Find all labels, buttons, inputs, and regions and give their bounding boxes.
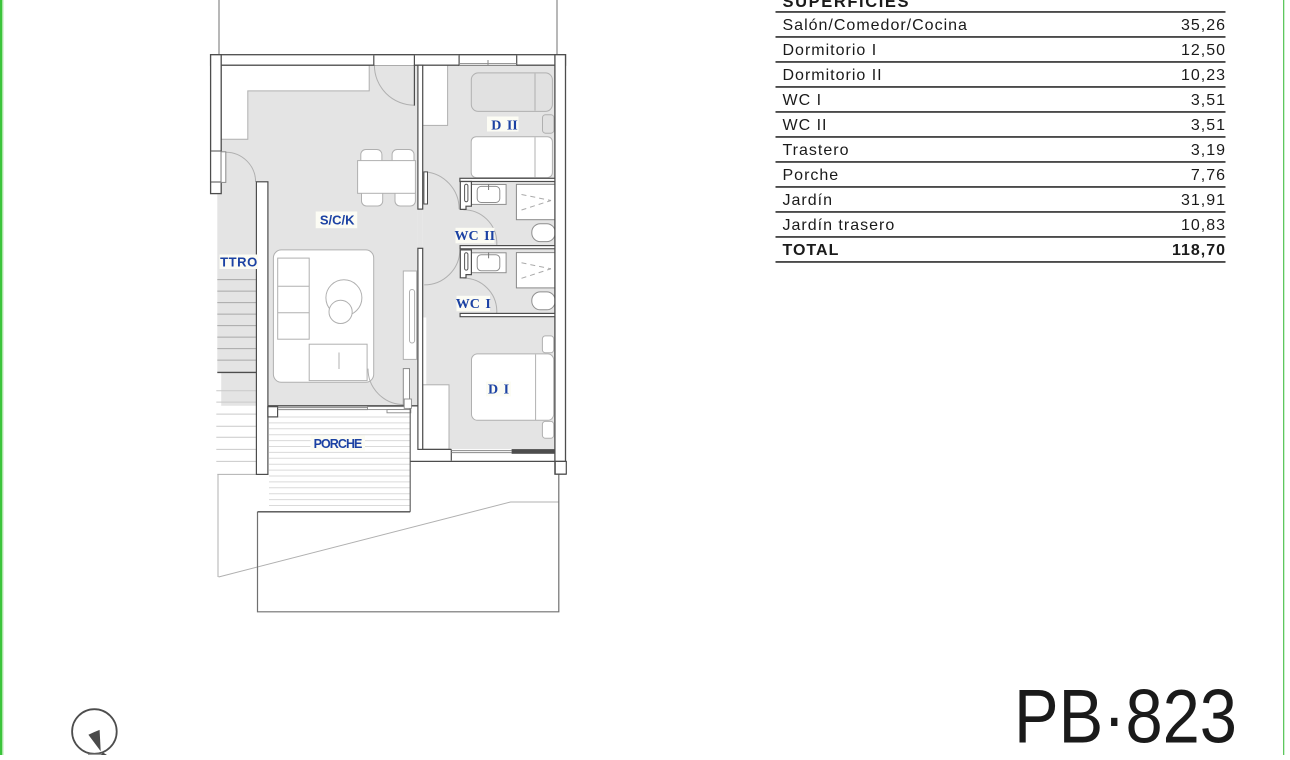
svg-text:D II: D II <box>491 119 518 134</box>
svg-text:3,51: 3,51 <box>1191 117 1226 134</box>
svg-text:SUPERFICIES: SUPERFICIES <box>783 0 911 11</box>
svg-text:Dormitorio I: Dormitorio I <box>783 42 878 59</box>
svg-text:Jardín: Jardín <box>783 192 833 209</box>
svg-text:Jardín trasero: Jardín trasero <box>783 217 896 234</box>
svg-text:3,19: 3,19 <box>1191 142 1226 159</box>
svg-text:TOTAL: TOTAL <box>783 242 840 259</box>
svg-text:D I: D I <box>488 383 509 398</box>
svg-text:12,50: 12,50 <box>1181 42 1226 59</box>
svg-text:31,91: 31,91 <box>1181 192 1226 209</box>
svg-text:TTRO: TTRO <box>220 255 258 270</box>
svg-text:WC II: WC II <box>783 117 828 134</box>
svg-text:3,51: 3,51 <box>1191 92 1226 109</box>
svg-text:S/C/K: S/C/K <box>320 213 355 228</box>
svg-text:WC I: WC I <box>456 297 491 312</box>
svg-text:7,76: 7,76 <box>1191 167 1226 184</box>
svg-text:10,23: 10,23 <box>1181 67 1226 84</box>
svg-text:35,26: 35,26 <box>1181 17 1226 34</box>
svg-text:Trastero: Trastero <box>783 142 850 159</box>
svg-text:PB·823: PB·823 <box>1014 675 1237 756</box>
svg-text:Salón/Comedor/Cocina: Salón/Comedor/Cocina <box>783 17 968 34</box>
svg-text:Porche: Porche <box>783 167 840 184</box>
svg-text:10,83: 10,83 <box>1181 217 1226 234</box>
svg-text:WC I: WC I <box>783 92 823 109</box>
svg-text:PORCHE: PORCHE <box>314 437 363 451</box>
svg-text:118,70: 118,70 <box>1172 242 1226 259</box>
svg-text:Dormitorio II: Dormitorio II <box>783 67 883 84</box>
svg-text:WC II: WC II <box>455 229 496 244</box>
